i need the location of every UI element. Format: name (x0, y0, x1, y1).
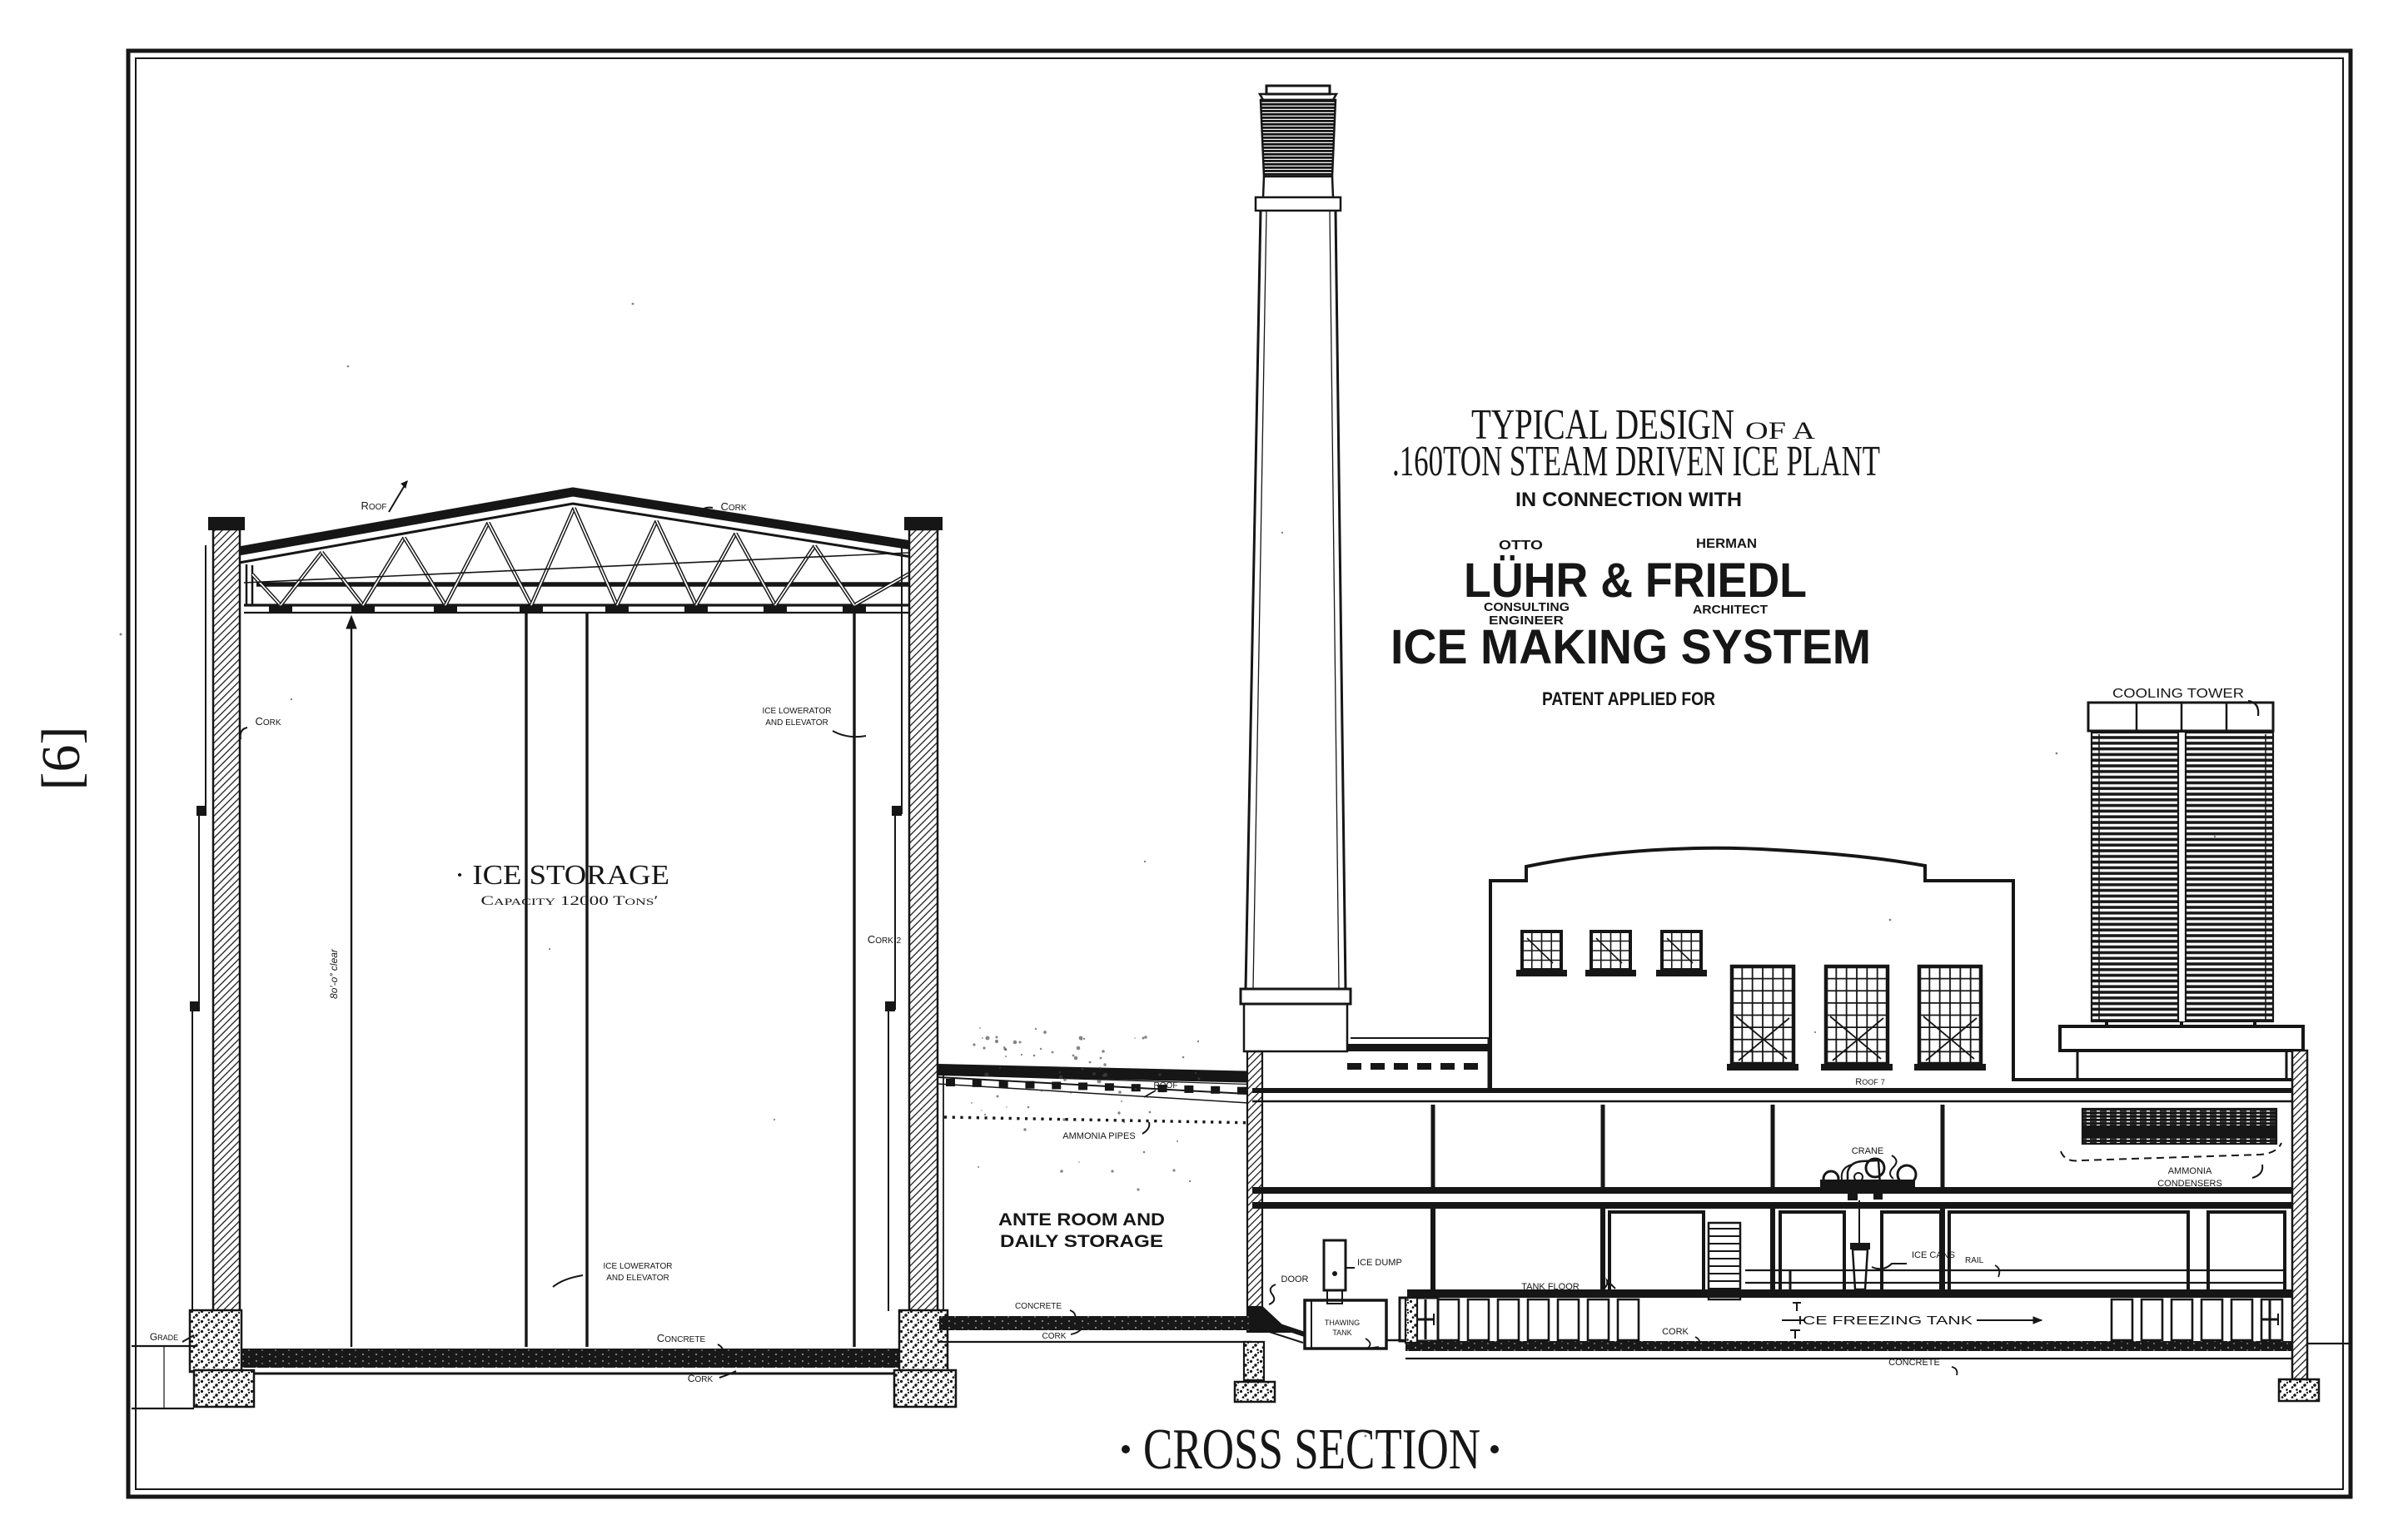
svg-text:· ICE STORAGE: · ICE STORAGE (455, 860, 669, 891)
svg-text:CONDENSERS: CONDENSERS (2157, 1179, 2222, 1189)
svg-text:CRANE: CRANE (1852, 1146, 1884, 1156)
svg-text:CONCRETE: CONCRETE (1015, 1302, 1062, 1311)
svg-text:[6]: [6] (31, 727, 92, 791)
svg-text:AMMONIA PIPES: AMMONIA PIPES (1062, 1131, 1135, 1141)
svg-text:IN CONNECTION WITH: IN CONNECTION WITH (1515, 489, 1742, 511)
svg-text:CROSS SECTION: CROSS SECTION (1143, 1418, 1480, 1482)
svg-text:OTTO: OTTO (1499, 539, 1543, 553)
svg-text:CONSULTING: CONSULTING (1484, 600, 1570, 614)
svg-text:ICE MAKING SYSTEM: ICE MAKING SYSTEM (1391, 620, 1871, 674)
svg-text:AND ELEVATOR: AND ELEVATOR (765, 718, 828, 728)
svg-text:ROOF 7: ROOF 7 (1855, 1077, 1885, 1087)
svg-text:ICE CANS: ICE CANS (1912, 1250, 1955, 1260)
svg-text:ROOF: ROOF (1154, 1081, 1178, 1090)
svg-text:CORK: CORK (1662, 1327, 1689, 1337)
svg-text:.160TON STEAM DRIVEN ICE PLANT: .160TON STEAM DRIVEN ICE PLANT (1392, 438, 1880, 485)
svg-text:CORK: CORK (1042, 1332, 1067, 1341)
svg-text:ANTE ROOM AND: ANTE ROOM AND (998, 1210, 1165, 1230)
svg-text:AND ELEVATOR: AND ELEVATOR (606, 1274, 669, 1283)
svg-text:DAILY STORAGE: DAILY STORAGE (1000, 1232, 1163, 1251)
svg-text:8o′-o″ clear: 8o′-o″ clear (328, 948, 340, 999)
svg-text:DOOR: DOOR (1281, 1274, 1309, 1284)
svg-text:CORK: CORK (688, 1373, 714, 1384)
svg-text:PATENT APPLIED FOR: PATENT APPLIED FOR (1542, 688, 1715, 709)
svg-text:ICE LOWERATOR: ICE LOWERATOR (604, 1262, 673, 1271)
svg-text:ICE FREEZING TANK: ICE FREEZING TANK (1798, 1314, 1973, 1328)
svg-text:GRADE: GRADE (150, 1331, 178, 1343)
svg-text:AMMONIA: AMMONIA (2168, 1166, 2212, 1176)
svg-text:HERMAN: HERMAN (1696, 537, 1757, 551)
svg-text:TANK: TANK (1332, 1329, 1351, 1337)
svg-text:ARCHITECT: ARCHITECT (1693, 603, 1768, 617)
svg-text:CONCRETE: CONCRETE (1888, 1358, 1940, 1368)
svg-text:RAIL: RAIL (1965, 1256, 1984, 1265)
svg-text:ICE LOWERATOR: ICE LOWERATOR (763, 707, 832, 716)
svg-text:CAPACITY 12000 TONS′: CAPACITY 12000 TONS′ (481, 894, 659, 908)
svg-text:THAWING: THAWING (1325, 1319, 1360, 1327)
svg-text:COOLING TOWER: COOLING TOWER (2112, 687, 2244, 701)
svg-text:ICE DUMP: ICE DUMP (1357, 1258, 1402, 1268)
svg-text:TANK FLOOR: TANK FLOOR (1521, 1282, 1580, 1292)
